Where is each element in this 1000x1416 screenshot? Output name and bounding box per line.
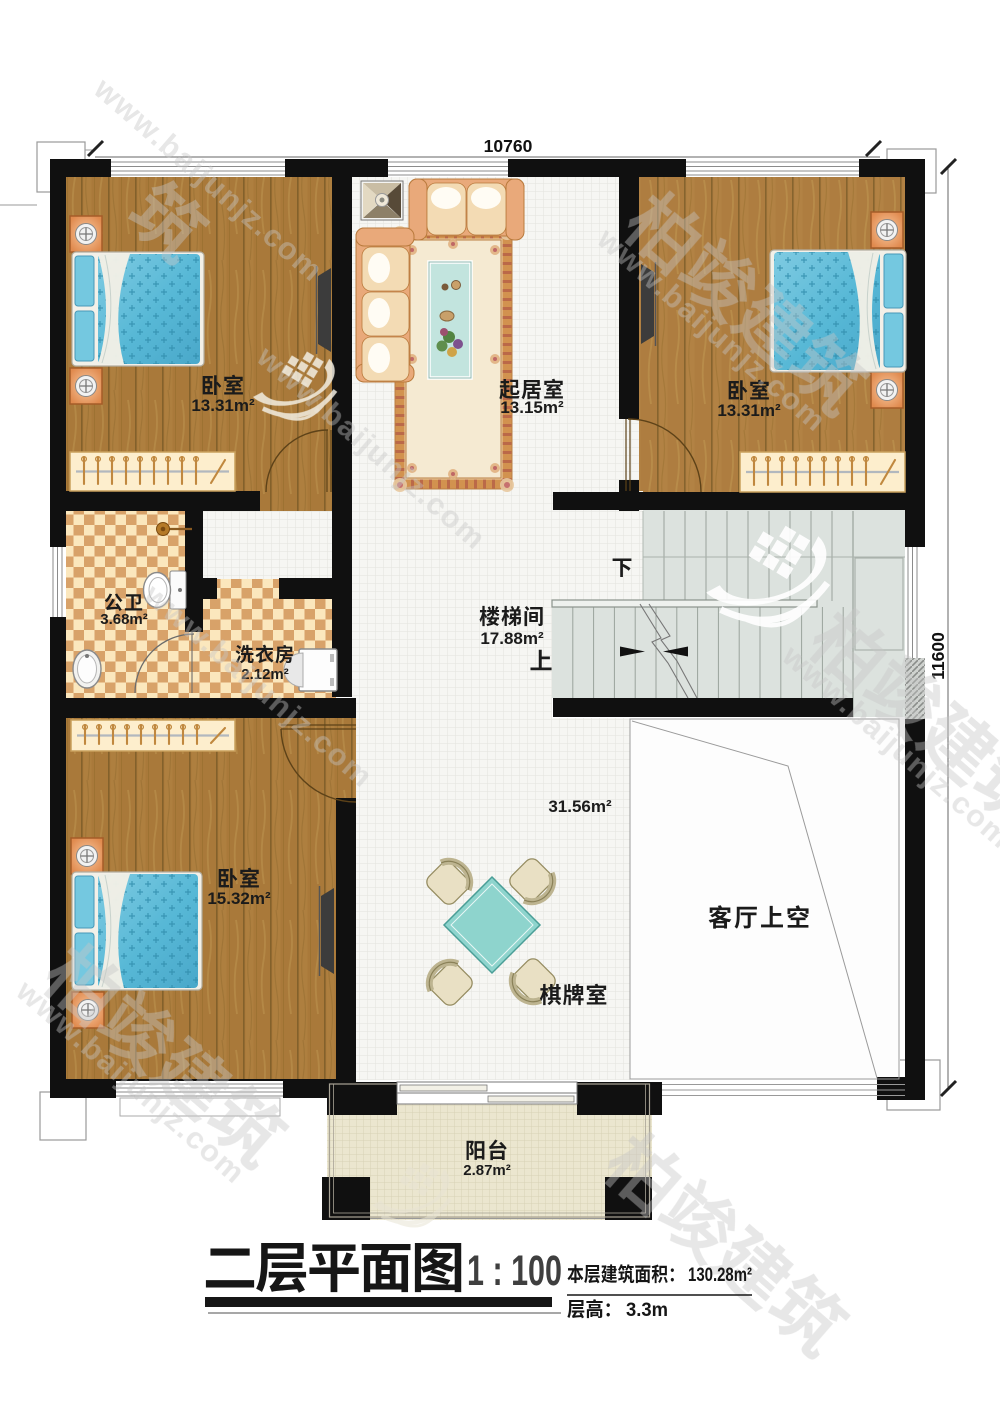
svg-text:上: 上 [530,642,553,676]
svg-text:130.28m²: 130.28m² [688,1260,752,1287]
svg-text:2.87m²: 2.87m² [463,1159,511,1180]
svg-text:15.32m²: 15.32m² [207,884,271,909]
svg-text:柏竣建筑: 柏竣建筑 [586,1107,872,1375]
svg-text:1 : 100: 1 : 100 [467,1236,562,1298]
svg-text:3.68m²: 3.68m² [100,608,148,629]
svg-text:10760: 10760 [484,133,533,158]
svg-text:31.56m²: 31.56m² [548,792,612,817]
svg-text:层高：: 层高： [567,1293,622,1322]
svg-text:二层平面图: 二层平面图 [203,1224,463,1303]
svg-text:下: 下 [612,552,633,582]
svg-text:本层建筑面积：: 本层建筑面积： [567,1258,685,1287]
svg-text:棋牌室: 棋牌室 [539,978,608,1010]
svg-text:3.3m: 3.3m [626,1295,668,1322]
svg-text:客厅上空: 客厅上空 [708,898,812,933]
svg-text:13.31m²: 13.31m² [191,391,255,416]
svg-text:13.15m²: 13.15m² [500,393,564,418]
